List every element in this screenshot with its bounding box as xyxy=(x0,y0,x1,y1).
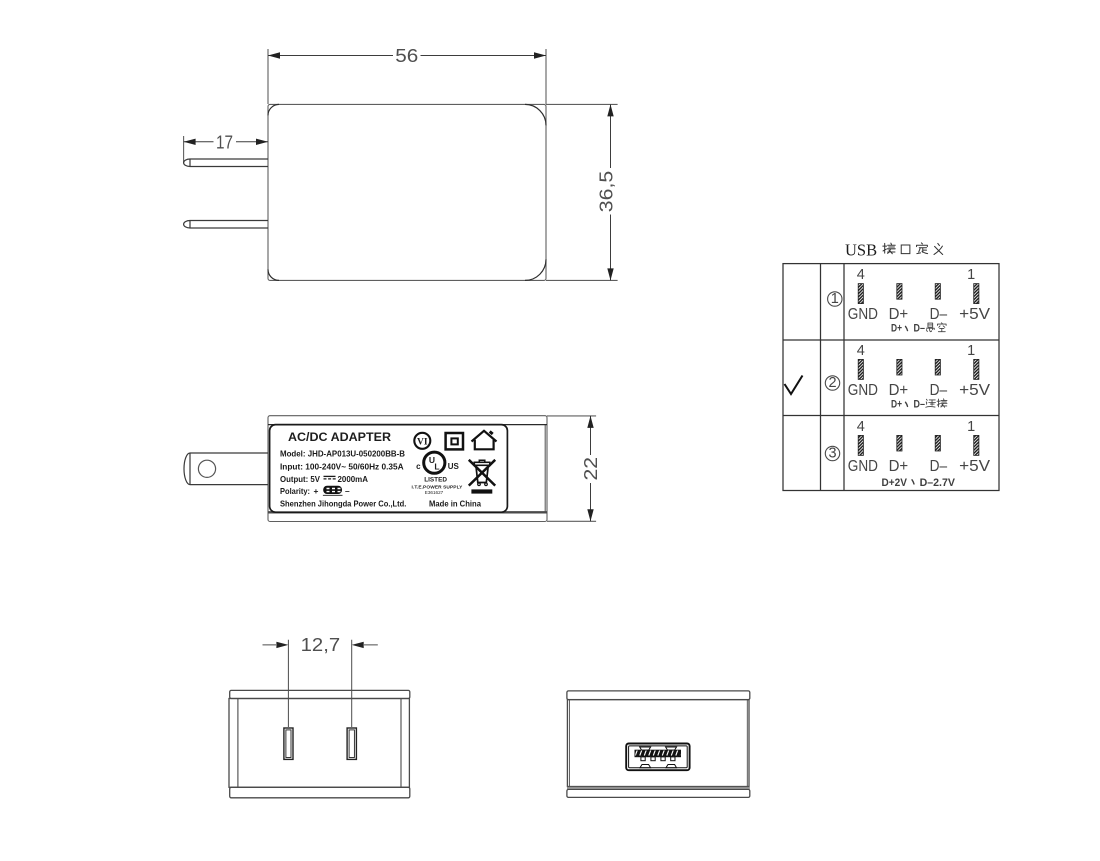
svg-text:2: 2 xyxy=(828,375,836,391)
svg-text:Polarity:: Polarity: xyxy=(280,486,310,496)
svg-text:3: 3 xyxy=(828,446,836,462)
svg-text:GND: GND xyxy=(848,382,878,399)
svg-text:D–2.7V: D–2.7V xyxy=(920,477,956,489)
svg-text:D+: D+ xyxy=(889,306,909,323)
svg-text:AC/DC ADAPTER: AC/DC ADAPTER xyxy=(288,430,391,444)
svg-text:USB: USB xyxy=(845,241,877,260)
svg-text:E361627: E361627 xyxy=(425,490,444,495)
svg-text:D+2V: D+2V xyxy=(882,477,908,489)
svg-text:D+: D+ xyxy=(891,398,902,410)
svg-text:D–: D– xyxy=(914,398,925,410)
svg-text:D–: D– xyxy=(930,458,948,475)
svg-text:+5V: +5V xyxy=(959,306,990,323)
svg-text:+: + xyxy=(314,486,319,496)
svg-text:22: 22 xyxy=(580,457,601,481)
svg-text:1: 1 xyxy=(967,267,975,283)
svg-text:D+: D+ xyxy=(889,382,909,399)
svg-text:17: 17 xyxy=(216,132,233,153)
svg-text:1: 1 xyxy=(831,291,839,307)
svg-text:56: 56 xyxy=(395,45,418,66)
svg-text:4: 4 xyxy=(857,267,865,283)
svg-text:+5V: +5V xyxy=(959,382,990,399)
svg-text:GND: GND xyxy=(848,458,878,475)
svg-text:Made in China: Made in China xyxy=(429,499,481,509)
svg-text:1: 1 xyxy=(967,343,975,359)
svg-text:4: 4 xyxy=(857,343,865,359)
svg-text:2000mA: 2000mA xyxy=(338,474,369,484)
svg-text:Output: 5V: Output: 5V xyxy=(280,474,320,484)
svg-text:Shenzhen Jihongda Power Co.,Lt: Shenzhen Jihongda Power Co.,Ltd. xyxy=(280,499,406,509)
svg-text:VI: VI xyxy=(417,437,428,447)
svg-text:D+: D+ xyxy=(889,458,909,475)
svg-text:D–: D– xyxy=(930,306,948,323)
svg-text:+5V: +5V xyxy=(959,458,990,475)
svg-text:Input: 100-240V~ 50/60Hz 0.3: Input: 100-240V~ 50/60Hz 0.35A xyxy=(280,462,404,472)
svg-text:D+: D+ xyxy=(891,323,902,335)
svg-text:GND: GND xyxy=(848,306,878,323)
svg-text:LISTED: LISTED xyxy=(424,477,447,484)
svg-text:D–: D– xyxy=(930,382,948,399)
svg-text:12,7: 12,7 xyxy=(301,634,341,655)
svg-text:36,5: 36,5 xyxy=(596,171,617,213)
svg-text:c: c xyxy=(416,462,421,471)
svg-text:Model: JHD-AP013U-050200BB-B: Model: JHD-AP013U-050200BB-B xyxy=(280,449,405,459)
svg-text:D–: D– xyxy=(914,323,925,335)
svg-text:L: L xyxy=(434,462,439,472)
svg-text:4: 4 xyxy=(857,419,865,435)
svg-text:–: – xyxy=(345,486,350,496)
svg-text:1: 1 xyxy=(967,419,975,435)
svg-text:US: US xyxy=(448,462,460,471)
